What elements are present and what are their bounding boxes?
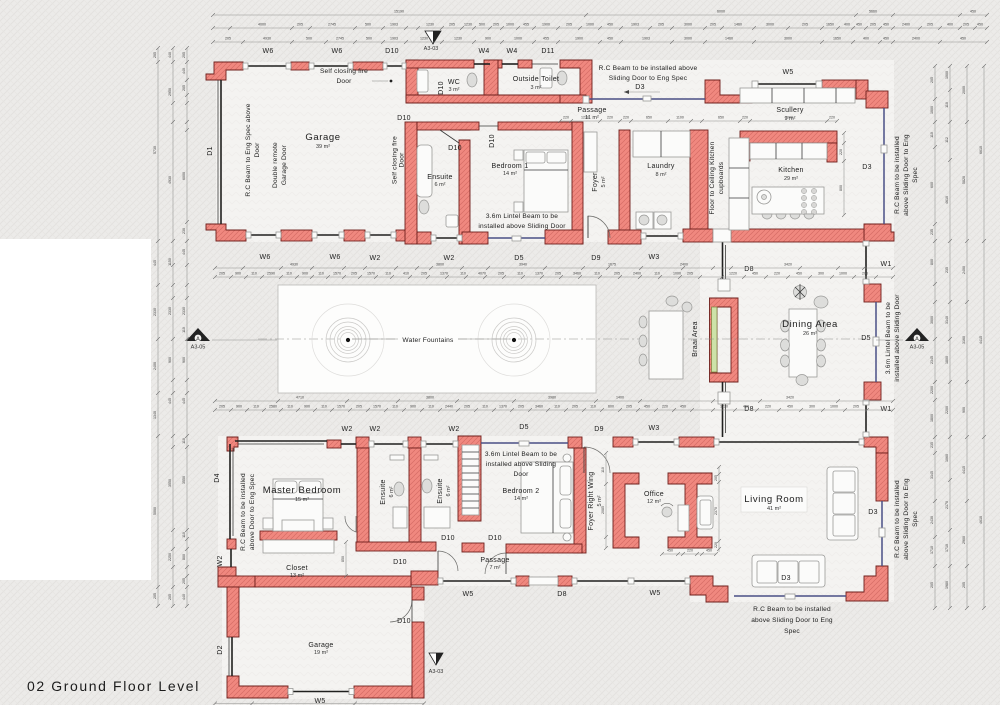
svg-text:R.C Beam to be installed: R.C Beam to be installed: [894, 136, 901, 214]
svg-text:1230: 1230: [464, 23, 472, 27]
svg-text:2745: 2745: [328, 23, 336, 27]
svg-text:205: 205: [182, 85, 186, 91]
svg-text:2170: 2170: [945, 501, 949, 509]
svg-text:235: 235: [930, 442, 934, 448]
svg-text:above Sliding Door to Eng: above Sliding Door to Eng: [903, 134, 910, 216]
svg-text:1000: 1000: [506, 23, 514, 27]
svg-text:450: 450: [787, 405, 793, 409]
svg-text:A3-05: A3-05: [191, 345, 206, 351]
svg-text:Spec: Spec: [912, 511, 919, 527]
svg-text:Door: Door: [336, 78, 352, 85]
svg-text:450: 450: [883, 37, 889, 41]
svg-text:3800: 3800: [436, 263, 444, 267]
svg-text:Foyer Right Wing: Foyer Right Wing: [588, 472, 595, 531]
svg-text:2400: 2400: [153, 362, 157, 370]
svg-text:1370: 1370: [499, 405, 507, 409]
svg-text:205: 205: [498, 272, 504, 276]
svg-text:3420: 3420: [786, 396, 794, 400]
svg-text:205: 205: [614, 272, 620, 276]
svg-text:650: 650: [718, 116, 724, 120]
svg-text:110: 110: [601, 467, 605, 473]
svg-text:D2: D2: [217, 645, 224, 655]
svg-text:Door: Door: [254, 142, 261, 158]
svg-text:5 m²: 5 m²: [597, 495, 603, 506]
svg-text:4930: 4930: [168, 176, 172, 184]
svg-text:410: 410: [403, 272, 409, 276]
svg-text:450: 450: [644, 405, 650, 409]
svg-text:450: 450: [796, 272, 802, 276]
svg-text:3000: 3000: [684, 37, 692, 41]
svg-text:D5: D5: [519, 424, 529, 431]
svg-text:2330: 2330: [168, 307, 172, 315]
svg-text:19 m²: 19 m²: [314, 650, 328, 656]
svg-text:900: 900: [182, 357, 186, 363]
svg-text:2400: 2400: [912, 37, 920, 41]
svg-text:Office: Office: [644, 491, 664, 498]
svg-text:26 m²: 26 m²: [803, 331, 817, 337]
svg-text:Braai Area: Braai Area: [692, 321, 699, 357]
svg-text:1370: 1370: [440, 272, 448, 276]
svg-text:110: 110: [287, 405, 293, 409]
svg-text:5000: 5000: [153, 507, 157, 515]
svg-text:4415: 4415: [979, 336, 983, 344]
svg-text:110: 110: [517, 272, 523, 276]
svg-text:D10: D10: [397, 115, 411, 122]
svg-text:D3: D3: [862, 164, 872, 171]
svg-text:3140: 3140: [945, 316, 949, 324]
svg-text:1340: 1340: [153, 411, 157, 419]
svg-text:205: 205: [930, 582, 934, 588]
svg-text:R.C Beam to be installed above: R.C Beam to be installed above: [599, 65, 698, 72]
svg-text:450: 450: [883, 23, 889, 27]
svg-text:1000: 1000: [673, 272, 681, 276]
svg-text:W6: W6: [331, 48, 342, 55]
svg-text:Floor to Ceiling Kitchen: Floor to Ceiling Kitchen: [709, 141, 716, 214]
svg-text:445: 445: [153, 260, 157, 266]
svg-text:1230: 1230: [420, 37, 428, 41]
svg-text:4070: 4070: [478, 272, 486, 276]
svg-text:1000: 1000: [830, 405, 838, 409]
svg-text:Kitchen: Kitchen: [778, 167, 803, 174]
svg-text:Passage: Passage: [577, 107, 606, 114]
svg-text:W5: W5: [649, 590, 660, 597]
svg-text:110: 110: [594, 272, 600, 276]
svg-text:205: 205: [658, 23, 664, 27]
svg-text:205: 205: [449, 23, 455, 27]
svg-text:Master Bedroom: Master Bedroom: [263, 485, 342, 496]
svg-text:230: 230: [182, 228, 186, 234]
svg-text:205: 205: [802, 23, 808, 27]
svg-text:D11: D11: [541, 48, 554, 55]
svg-text:2200: 2200: [930, 386, 934, 394]
svg-text:W5: W5: [782, 69, 793, 76]
svg-text:A3-05: A3-05: [910, 345, 925, 351]
svg-text:205: 205: [572, 405, 578, 409]
svg-text:Laundry: Laundry: [647, 163, 675, 170]
svg-text:500: 500: [366, 37, 372, 41]
svg-text:D1: D1: [207, 146, 214, 156]
svg-text:500: 500: [306, 37, 312, 41]
svg-text:D10: D10: [489, 134, 496, 148]
svg-text:W6: W6: [329, 254, 340, 261]
svg-text:110: 110: [251, 272, 257, 276]
svg-text:1460: 1460: [734, 23, 742, 27]
svg-text:205: 205: [862, 272, 868, 276]
svg-text:600: 600: [608, 405, 614, 409]
svg-text:Dining Area: Dining Area: [782, 319, 838, 330]
svg-text:450: 450: [970, 10, 976, 14]
svg-text:2400: 2400: [633, 272, 641, 276]
svg-text:440: 440: [182, 594, 186, 600]
svg-text:205: 205: [963, 23, 969, 27]
svg-text:W1: W1: [880, 406, 891, 413]
svg-text:D10: D10: [397, 618, 411, 625]
svg-text:1903: 1903: [631, 23, 639, 27]
svg-text:220: 220: [662, 405, 668, 409]
svg-text:3940: 3940: [519, 263, 527, 267]
svg-text:445: 445: [182, 249, 186, 255]
svg-text:Garage: Garage: [308, 642, 333, 649]
svg-text:Scullery: Scullery: [776, 107, 803, 114]
svg-text:440: 440: [182, 68, 186, 74]
svg-text:2440: 2440: [445, 405, 453, 409]
svg-text:205: 205: [356, 405, 362, 409]
svg-text:D5: D5: [861, 335, 871, 342]
svg-text:1000: 1000: [514, 37, 522, 41]
svg-text:D10: D10: [438, 81, 445, 95]
svg-text:110: 110: [182, 532, 186, 538]
svg-text:installed above Sliding Door: installed above Sliding Door: [894, 294, 901, 382]
svg-text:14 m²: 14 m²: [503, 171, 517, 177]
svg-text:D5: D5: [514, 255, 524, 262]
svg-text:110: 110: [930, 132, 934, 138]
svg-text:900: 900: [485, 37, 491, 41]
svg-text:D10: D10: [488, 535, 502, 542]
svg-text:3000: 3000: [766, 23, 774, 27]
svg-text:12 m²: 12 m²: [647, 499, 661, 505]
svg-text:Foyer: Foyer: [592, 172, 599, 192]
svg-text:400: 400: [947, 23, 953, 27]
svg-text:600: 600: [930, 182, 934, 188]
svg-text:205: 205: [710, 23, 716, 27]
svg-text:39 m²: 39 m²: [316, 144, 330, 150]
svg-text:3145: 3145: [930, 471, 934, 479]
svg-text:220: 220: [687, 549, 693, 553]
svg-text:440: 440: [168, 52, 172, 58]
svg-text:220: 220: [623, 116, 629, 120]
svg-text:Closet: Closet: [286, 565, 308, 572]
svg-text:2400: 2400: [962, 266, 966, 274]
svg-text:2330: 2330: [153, 308, 157, 316]
svg-text:4415: 4415: [962, 466, 966, 474]
svg-text:D10: D10: [448, 145, 462, 152]
svg-text:110: 110: [321, 405, 327, 409]
svg-text:6610: 6610: [979, 146, 983, 154]
svg-text:Ensuite: Ensuite: [437, 478, 444, 503]
svg-text:29 m²: 29 m²: [784, 176, 798, 182]
svg-text:8 m²: 8 m²: [656, 172, 667, 178]
svg-text:A: A: [915, 337, 919, 343]
svg-text:220: 220: [774, 272, 780, 276]
svg-text:14 m²: 14 m²: [514, 496, 528, 502]
svg-text:Door: Door: [513, 471, 529, 478]
svg-text:D9: D9: [594, 426, 604, 433]
svg-text:205: 205: [421, 272, 427, 276]
svg-text:300: 300: [818, 272, 824, 276]
svg-text:6 m²: 6 m²: [446, 485, 452, 496]
svg-text:R.C Beam to be installed: R.C Beam to be installed: [753, 606, 831, 613]
svg-text:Outside Toilet: Outside Toilet: [513, 76, 559, 83]
svg-text:D3: D3: [868, 509, 878, 516]
svg-text:1900: 1900: [575, 37, 583, 41]
svg-text:3460: 3460: [535, 405, 543, 409]
svg-text:205: 205: [687, 272, 693, 276]
svg-text:850: 850: [341, 556, 345, 562]
svg-text:4610: 4610: [979, 516, 983, 524]
svg-text:110: 110: [385, 272, 391, 276]
svg-text:6 m²: 6 m²: [435, 182, 446, 188]
svg-text:900: 900: [235, 272, 241, 276]
svg-text:3460: 3460: [573, 272, 581, 276]
svg-text:2345: 2345: [930, 356, 934, 364]
svg-text:1230: 1230: [454, 37, 462, 41]
svg-text:110: 110: [945, 102, 949, 108]
svg-text:1370: 1370: [535, 272, 543, 276]
svg-text:110: 110: [590, 405, 596, 409]
svg-text:4710: 4710: [296, 396, 304, 400]
svg-text:1000: 1000: [839, 272, 847, 276]
svg-text:455: 455: [523, 23, 529, 27]
svg-text:W4: W4: [506, 48, 517, 55]
svg-text:5 m²: 5 m²: [601, 176, 607, 187]
svg-text:D10: D10: [393, 559, 407, 566]
svg-text:205: 205: [182, 52, 186, 58]
svg-text:205: 205: [219, 405, 225, 409]
svg-text:Bedroom 2: Bedroom 2: [503, 488, 540, 495]
svg-text:110: 110: [182, 438, 186, 444]
svg-text:3.6m Lintel Beam to be: 3.6m Lintel Beam to be: [485, 451, 557, 458]
svg-text:1230: 1230: [581, 116, 589, 120]
svg-text:2900: 2900: [962, 536, 966, 544]
svg-text:205: 205: [930, 77, 934, 83]
svg-text:205: 205: [962, 582, 966, 588]
svg-text:205: 205: [464, 405, 470, 409]
svg-text:Garage: Garage: [305, 132, 340, 143]
svg-text:3160: 3160: [962, 336, 966, 344]
svg-text:cupboards: cupboards: [718, 161, 725, 194]
svg-text:Door: Door: [399, 152, 406, 168]
svg-text:450: 450: [680, 405, 686, 409]
svg-text:110: 110: [286, 272, 292, 276]
svg-text:W2: W2: [443, 255, 454, 262]
svg-text:W5: W5: [462, 591, 473, 598]
svg-text:D4: D4: [214, 473, 221, 483]
svg-text:3 m²: 3 m²: [531, 85, 542, 91]
svg-text:900: 900: [304, 405, 310, 409]
svg-text:110: 110: [482, 405, 488, 409]
svg-text:Bedroom 1: Bedroom 1: [492, 163, 529, 170]
svg-text:2400: 2400: [680, 263, 688, 267]
svg-text:450: 450: [977, 23, 983, 27]
svg-text:1980: 1980: [945, 581, 949, 589]
svg-text:5660: 5660: [869, 10, 877, 14]
svg-text:2085: 2085: [601, 506, 605, 514]
svg-text:900: 900: [962, 407, 966, 413]
svg-text:205: 205: [566, 23, 572, 27]
svg-text:15190: 15190: [394, 10, 404, 14]
svg-text:D8: D8: [557, 591, 567, 598]
svg-text:450: 450: [960, 37, 966, 41]
svg-text:1903: 1903: [390, 37, 398, 41]
svg-text:205: 205: [870, 23, 876, 27]
svg-text:1710: 1710: [930, 546, 934, 554]
svg-text:445: 445: [182, 398, 186, 404]
svg-text:above Sliding Door to Eng: above Sliding Door to Eng: [903, 478, 910, 560]
svg-text:1000: 1000: [945, 71, 949, 79]
svg-text:Garage Door: Garage Door: [281, 144, 288, 185]
svg-text:1800: 1800: [945, 356, 949, 364]
svg-text:5820: 5820: [962, 176, 966, 184]
svg-text:2370: 2370: [714, 507, 718, 515]
svg-text:D3: D3: [781, 575, 791, 582]
svg-text:205: 205: [225, 37, 231, 41]
svg-text:110: 110: [460, 272, 466, 276]
svg-text:6 m²: 6 m²: [389, 486, 395, 497]
svg-text:2590: 2590: [267, 272, 275, 276]
svg-text:205: 205: [153, 593, 157, 599]
svg-text:W2: W2: [217, 555, 224, 566]
svg-text:4000: 4000: [258, 23, 266, 27]
svg-text:3.6m Lintel Beam to be: 3.6m Lintel Beam to be: [486, 213, 558, 220]
svg-text:205: 205: [168, 594, 172, 600]
svg-text:3420: 3420: [784, 263, 792, 267]
svg-text:450: 450: [667, 549, 673, 553]
svg-text:3550: 3550: [168, 479, 172, 487]
svg-text:Spec: Spec: [784, 628, 800, 635]
svg-text:4930: 4930: [290, 263, 298, 267]
svg-text:110: 110: [318, 272, 324, 276]
svg-text:800: 800: [930, 259, 934, 265]
svg-text:205: 205: [927, 23, 933, 27]
svg-text:400: 400: [863, 37, 869, 41]
svg-text:205: 205: [153, 52, 157, 58]
svg-text:1400: 1400: [616, 396, 624, 400]
svg-text:5730: 5730: [153, 146, 157, 154]
svg-text:1675: 1675: [608, 263, 616, 267]
svg-text:205: 205: [518, 405, 524, 409]
svg-text:13 m²: 13 m²: [290, 573, 304, 579]
svg-text:W2: W2: [369, 426, 380, 433]
svg-text:W6: W6: [262, 48, 273, 55]
svg-text:220: 220: [607, 116, 613, 120]
svg-text:300: 300: [809, 405, 815, 409]
svg-text:220: 220: [765, 405, 771, 409]
svg-text:110: 110: [392, 405, 398, 409]
svg-text:1220: 1220: [720, 405, 728, 409]
svg-text:1220: 1220: [729, 272, 737, 276]
svg-text:235: 235: [930, 229, 934, 235]
svg-text:R.C Beam to Eng Spec above: R.C Beam to Eng Spec above: [245, 103, 252, 196]
svg-text:2330: 2330: [182, 307, 186, 315]
svg-text:1903: 1903: [642, 37, 650, 41]
svg-text:3.6m Lintel Beam to be: 3.6m Lintel Beam to be: [885, 302, 892, 374]
svg-text:3000: 3000: [930, 316, 934, 324]
svg-text:1570: 1570: [373, 405, 381, 409]
svg-text:6000: 6000: [717, 10, 725, 14]
svg-text:installed above Sliding: installed above Sliding: [486, 461, 556, 468]
svg-text:220: 220: [742, 116, 748, 120]
svg-text:W2: W2: [341, 426, 352, 433]
svg-text:450: 450: [706, 549, 712, 553]
svg-text:1000: 1000: [586, 23, 594, 27]
svg-text:1570: 1570: [367, 272, 375, 276]
svg-text:900: 900: [410, 405, 416, 409]
svg-text:900: 900: [236, 405, 242, 409]
svg-text:205: 205: [297, 23, 303, 27]
svg-text:3 m²: 3 m²: [449, 87, 460, 93]
svg-text:Ensuite: Ensuite: [427, 174, 452, 181]
svg-text:110: 110: [182, 327, 186, 333]
svg-text:R.C Beam to be installed: R.C Beam to be installed: [240, 473, 247, 551]
svg-text:450: 450: [743, 405, 749, 409]
svg-text:6000: 6000: [182, 172, 186, 180]
svg-text:Water Fountains: Water Fountains: [402, 337, 454, 344]
svg-text:W3: W3: [648, 425, 659, 432]
svg-text:W1: W1: [880, 261, 891, 268]
svg-text:Sliding Door to Eng Spec: Sliding Door to Eng Spec: [609, 75, 688, 82]
svg-text:1900: 1900: [542, 23, 550, 27]
svg-text:W3: W3: [648, 254, 659, 261]
svg-text:220: 220: [563, 116, 569, 120]
svg-text:1150: 1150: [168, 258, 172, 266]
svg-text:110: 110: [428, 405, 434, 409]
svg-text:D10: D10: [385, 48, 399, 55]
svg-text:A3-03: A3-03: [429, 669, 444, 675]
svg-text:WC: WC: [448, 79, 460, 86]
svg-text:above Sliding Door to Eng: above Sliding Door to Eng: [751, 617, 833, 624]
svg-text:650: 650: [646, 116, 652, 120]
svg-text:800: 800: [182, 554, 186, 560]
svg-text:1460: 1460: [725, 37, 733, 41]
svg-text:D3: D3: [635, 84, 645, 91]
svg-text:110: 110: [654, 272, 660, 276]
svg-text:1100: 1100: [676, 116, 684, 120]
svg-text:2580: 2580: [269, 405, 277, 409]
svg-text:2250: 2250: [168, 553, 172, 561]
svg-text:205: 205: [626, 405, 632, 409]
svg-text:205: 205: [555, 272, 561, 276]
svg-text:D10: D10: [441, 535, 455, 542]
svg-text:4930: 4930: [263, 37, 271, 41]
svg-text:1710: 1710: [945, 544, 949, 552]
svg-text:110: 110: [554, 405, 560, 409]
svg-text:3550: 3550: [182, 476, 186, 484]
svg-text:Double remote: Double remote: [272, 142, 279, 188]
svg-text:1060: 1060: [945, 454, 949, 462]
svg-text:450: 450: [607, 37, 613, 41]
svg-text:W6: W6: [259, 254, 270, 261]
svg-text:A: A: [196, 337, 200, 343]
svg-text:3980: 3980: [548, 396, 556, 400]
svg-text:above Door to Eng Spec: above Door to Eng Spec: [249, 473, 256, 550]
svg-text:205: 205: [493, 23, 499, 27]
svg-text:205: 205: [714, 475, 718, 481]
svg-text:205: 205: [182, 578, 186, 584]
svg-text:220: 220: [839, 149, 843, 155]
svg-text:1650: 1650: [826, 23, 834, 27]
svg-text:205: 205: [219, 272, 225, 276]
svg-text:2200: 2200: [945, 406, 949, 414]
